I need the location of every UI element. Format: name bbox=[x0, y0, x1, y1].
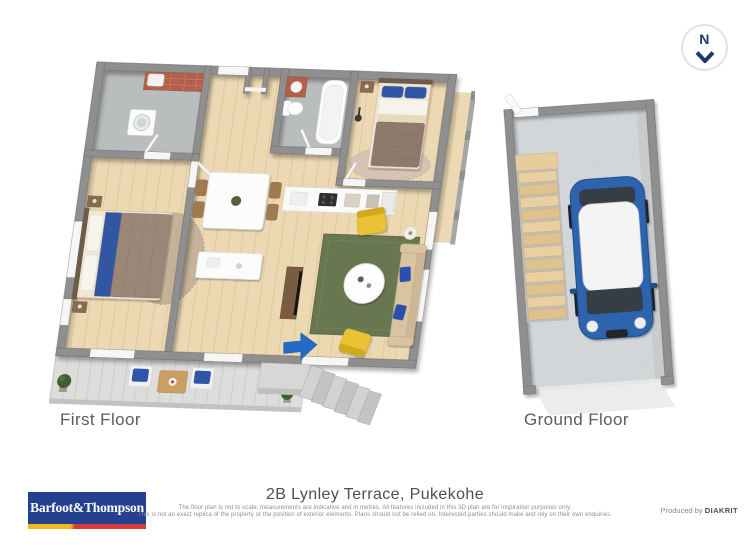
floorplan-page: N bbox=[0, 0, 750, 547]
washing-machine bbox=[127, 109, 157, 136]
diakrit-brand: DIAKRIT bbox=[705, 506, 738, 515]
master-bedroom bbox=[70, 196, 174, 316]
bed bbox=[72, 208, 173, 303]
deck-table bbox=[157, 370, 188, 393]
first-floor-plan bbox=[25, 56, 475, 441]
chevron-down-icon bbox=[694, 51, 716, 63]
kitchen-island bbox=[195, 252, 263, 280]
logo-stripe bbox=[28, 524, 146, 529]
produced-by: Produced by DIAKRIT bbox=[661, 506, 738, 515]
car-grille bbox=[606, 329, 629, 339]
car-roof bbox=[578, 201, 644, 293]
car-windshield bbox=[586, 287, 644, 315]
vanity bbox=[285, 77, 308, 98]
car-mirror bbox=[649, 283, 657, 289]
car-mirror bbox=[570, 288, 578, 294]
compass-north-label: N bbox=[683, 31, 726, 47]
ground-floor-label: Ground Floor bbox=[524, 410, 629, 430]
first-floor-label: First Floor bbox=[60, 410, 141, 430]
ground-floor-plan bbox=[488, 90, 678, 420]
exterior-stairs bbox=[297, 366, 385, 425]
property-address: 2B Lynley Terrace, Pukekohe bbox=[0, 486, 750, 504]
deck-chair bbox=[128, 365, 153, 387]
deck-chair bbox=[190, 368, 215, 390]
disclaimer-line-2: This is not an exact replica of the prop… bbox=[0, 512, 750, 519]
produced-by-label: Produced by bbox=[661, 506, 703, 515]
car bbox=[562, 175, 661, 341]
disclaimer-line-1: The floor plan is not to scale, measurem… bbox=[0, 505, 750, 512]
armchair bbox=[356, 207, 386, 236]
compass-icon: N bbox=[681, 24, 728, 71]
